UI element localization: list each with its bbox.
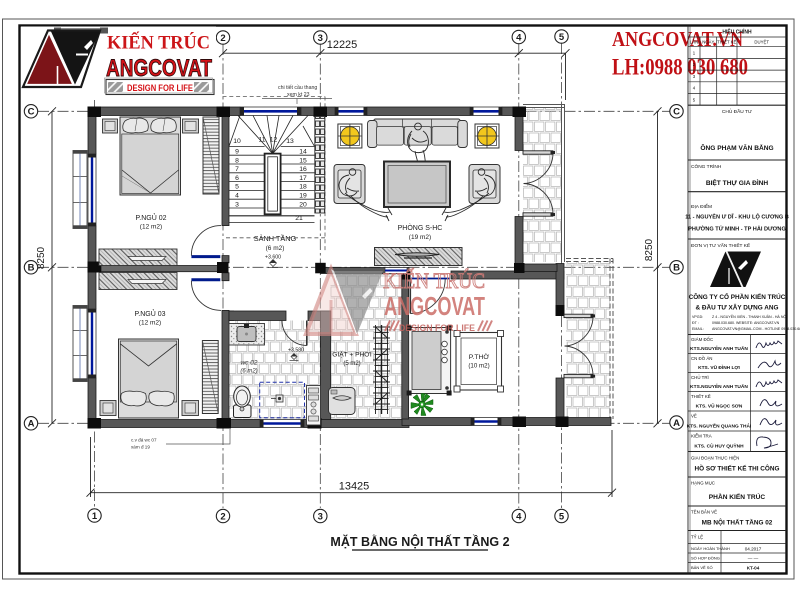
svg-text:— —: — — [748,556,759,561]
svg-text:Z 4 - NGUYỄN XIỂN - THANH XUÂN: Z 4 - NGUYỄN XIỂN - THANH XUÂN - HÀ NỘI [712,314,787,319]
svg-text:2: 2 [220,511,225,522]
svg-text:5: 5 [235,184,239,191]
svg-text:11 - NGUYỄN Ư DĨ - KHU LỘ CƯƠN: 11 - NGUYỄN Ư DĨ - KHU LỘ CƯƠNG B [685,213,789,221]
svg-text:THIẾT KẾ: THIẾT KẾ [691,394,711,399]
svg-text:A: A [28,419,35,430]
svg-text:PHÒNG S-HC: PHÒNG S-HC [398,223,443,232]
svg-text:(5 m2): (5 m2) [343,361,360,367]
svg-text:xem kt 23: xem kt 23 [287,92,310,98]
svg-text:NGÀY HOÀN THÀNH: NGÀY HOÀN THÀNH [691,546,730,551]
svg-text:15: 15 [299,157,307,164]
svg-text:C: C [673,107,680,118]
svg-text:GIÁM ĐỐC: GIÁM ĐỐC [691,337,713,342]
svg-text:c.v đá wc 07: c.v đá wc 07 [131,438,157,443]
svg-text:BẢN VẼ SỐ: BẢN VẼ SỐ [691,565,713,570]
svg-text:20: 20 [299,201,307,208]
svg-text:A: A [673,418,680,429]
svg-text:19: 19 [299,193,307,200]
svg-text:0988.030.680. WEBSITE: ANGCOVA: 0988.030.680. WEBSITE: ANGCOVAT.VN [712,321,780,325]
svg-text:THIẾT KẾ: THIẾT KẾ [717,40,736,45]
svg-text:5: 5 [559,511,565,522]
svg-text:VPGD:: VPGD: [692,315,703,319]
svg-text:2: 2 [220,33,225,44]
svg-text:5: 5 [559,32,565,43]
svg-text:LẦN: LẦN [690,40,698,45]
svg-text:B: B [673,263,680,274]
svg-text:CHỦ TRÌ: CHỦ TRÌ [691,375,709,380]
svg-text:8: 8 [235,157,239,164]
svg-text:3: 3 [318,33,323,44]
svg-text:P.NGỦ 02: P.NGỦ 02 [136,213,167,222]
svg-text:xám đ 19: xám đ 19 [131,445,150,450]
svg-text:HIỆU CHỈNH: HIỆU CHỈNH [722,28,752,36]
svg-text:GIAI ĐOẠN THỰC HIỆN: GIAI ĐOẠN THỰC HIỆN [691,456,739,461]
svg-text:ÔNG PHẠM VĂN BẰNG: ÔNG PHẠM VĂN BẰNG [700,143,773,152]
svg-text:P.THỜ: P.THỜ [469,352,490,361]
svg-text:11: 11 [258,137,265,144]
svg-text:21: 21 [295,215,303,222]
svg-text:(6 m2): (6 m2) [240,369,257,375]
svg-text:(12 m2): (12 m2) [140,224,162,231]
svg-text:PHƯỜNG TỨ MINH - TP HẢI DƯƠNG: PHƯỜNG TỨ MINH - TP HẢI DƯƠNG [688,225,786,233]
svg-text:KIỂM TRA: KIỂM TRA [691,434,712,439]
svg-text:C: C [28,107,35,118]
svg-text:9: 9 [235,149,239,156]
svg-text:04.2017: 04.2017 [745,547,762,552]
svg-text:KTS. NGUYỄN QUANG THÁI: KTS. NGUYỄN QUANG THÁI [687,423,752,430]
svg-text:BIỆT THỰ GIA ĐÌNH: BIỆT THỰ GIA ĐÌNH [706,178,769,187]
svg-text:3: 3 [235,201,239,208]
svg-text:3: 3 [318,511,323,522]
svg-text:4: 4 [516,511,522,522]
svg-text:B: B [28,263,35,274]
svg-text:KTS.NGUYỄN ANH TUẤN: KTS.NGUYỄN ANH TUẤN [690,345,748,352]
svg-text:12: 12 [270,137,278,144]
svg-text:TỶ LỆ: TỶ LỆ [691,535,703,540]
svg-text:6: 6 [235,175,239,182]
svg-text:DUYỆT: DUYỆT [754,40,769,45]
svg-text:ĐƠN VỊ TƯ VẤN THIẾT KẾ: ĐƠN VỊ TƯ VẤN THIẾT KẾ [691,242,750,249]
svg-text:4: 4 [235,193,239,200]
svg-text:1: 1 [92,511,98,522]
svg-text:18: 18 [299,184,307,191]
svg-text:EMAIL:: EMAIL: [692,327,704,331]
svg-text:chi tiết cầu thang: chi tiết cầu thang [278,85,317,91]
svg-text:KIẾN TRÚC: KIẾN TRÚC [107,32,210,54]
svg-text:CÔNG TRÌNH: CÔNG TRÌNH [691,163,722,170]
svg-text:(12 m2): (12 m2) [139,320,161,327]
svg-text:(10 m2): (10 m2) [468,363,489,370]
svg-text:12225: 12225 [327,39,358,51]
svg-text:8250: 8250 [644,238,655,261]
svg-text:KIẾN TRÚC: KIẾN TRÚC [383,268,485,293]
svg-text:(6 m2): (6 m2) [266,245,285,252]
svg-text:KTS. VŨ NGỌC SƠN: KTS. VŨ NGỌC SƠN [696,403,743,410]
svg-text:KT-04: KT-04 [747,566,760,571]
svg-text:TÊN BẢN VẼ: TÊN BẢN VẼ [691,510,717,515]
svg-text:13425: 13425 [339,481,370,493]
svg-text:GIẶT + PHƠI: GIẶT + PHƠI [332,350,372,359]
svg-text:7: 7 [235,166,239,173]
svg-text:(19 m2): (19 m2) [409,234,431,241]
svg-text:SỐ HỢP ĐỒNG: SỐ HỢP ĐỒNG [691,556,720,561]
svg-text:ANGCOVAT: ANGCOVAT [384,291,485,321]
svg-text:P.NGỦ 03: P.NGỦ 03 [135,309,166,318]
svg-text:13: 13 [286,138,294,145]
svg-text:wc 02: wc 02 [241,360,258,367]
svg-text:VẼ: VẼ [691,414,697,419]
svg-text:CHỦ ĐẦU TƯ: CHỦ ĐẦU TƯ [722,108,752,115]
svg-text:16: 16 [299,166,307,173]
svg-text:ANGCOVAT.VN@GMAIL.COM - HOTLIN: ANGCOVAT.VN@GMAIL.COM - HOTLINE 0988.030… [712,327,800,331]
svg-text:10: 10 [233,138,241,145]
svg-text:17: 17 [299,175,307,182]
svg-text:CN ĐỒ ÁN: CN ĐỒ ÁN [691,356,712,361]
svg-text:ĐỊA ĐIỂM: ĐỊA ĐIỂM [691,203,712,210]
svg-text:ĐT :: ĐT : [692,321,699,325]
svg-text:+3.580: +3.580 [288,348,304,354]
svg-text:DESIGN FOR LIFE: DESIGN FOR LIFE [127,83,193,94]
svg-text:HẠNG MỤC: HẠNG MỤC [691,481,715,486]
svg-text:NGÀY: NGÀY [702,40,714,45]
svg-text:4: 4 [516,32,522,43]
svg-text:MẶT BẰNG NỘI THẤT TẦNG 2: MẶT BẰNG NỘI THẤT TẦNG 2 [330,534,509,549]
svg-text:14: 14 [299,149,307,156]
svg-text:DESIGN FOR LIFE: DESIGN FOR LIFE [399,323,475,334]
svg-text:SẢNH TẦNG: SẢNH TẦNG [254,233,297,243]
svg-text:KTS.NGUYỄN ANH TUẤN: KTS.NGUYỄN ANH TUẤN [690,383,748,390]
svg-text:KTS. CÙ HUY QUỲNH: KTS. CÙ HUY QUỲNH [694,443,744,450]
